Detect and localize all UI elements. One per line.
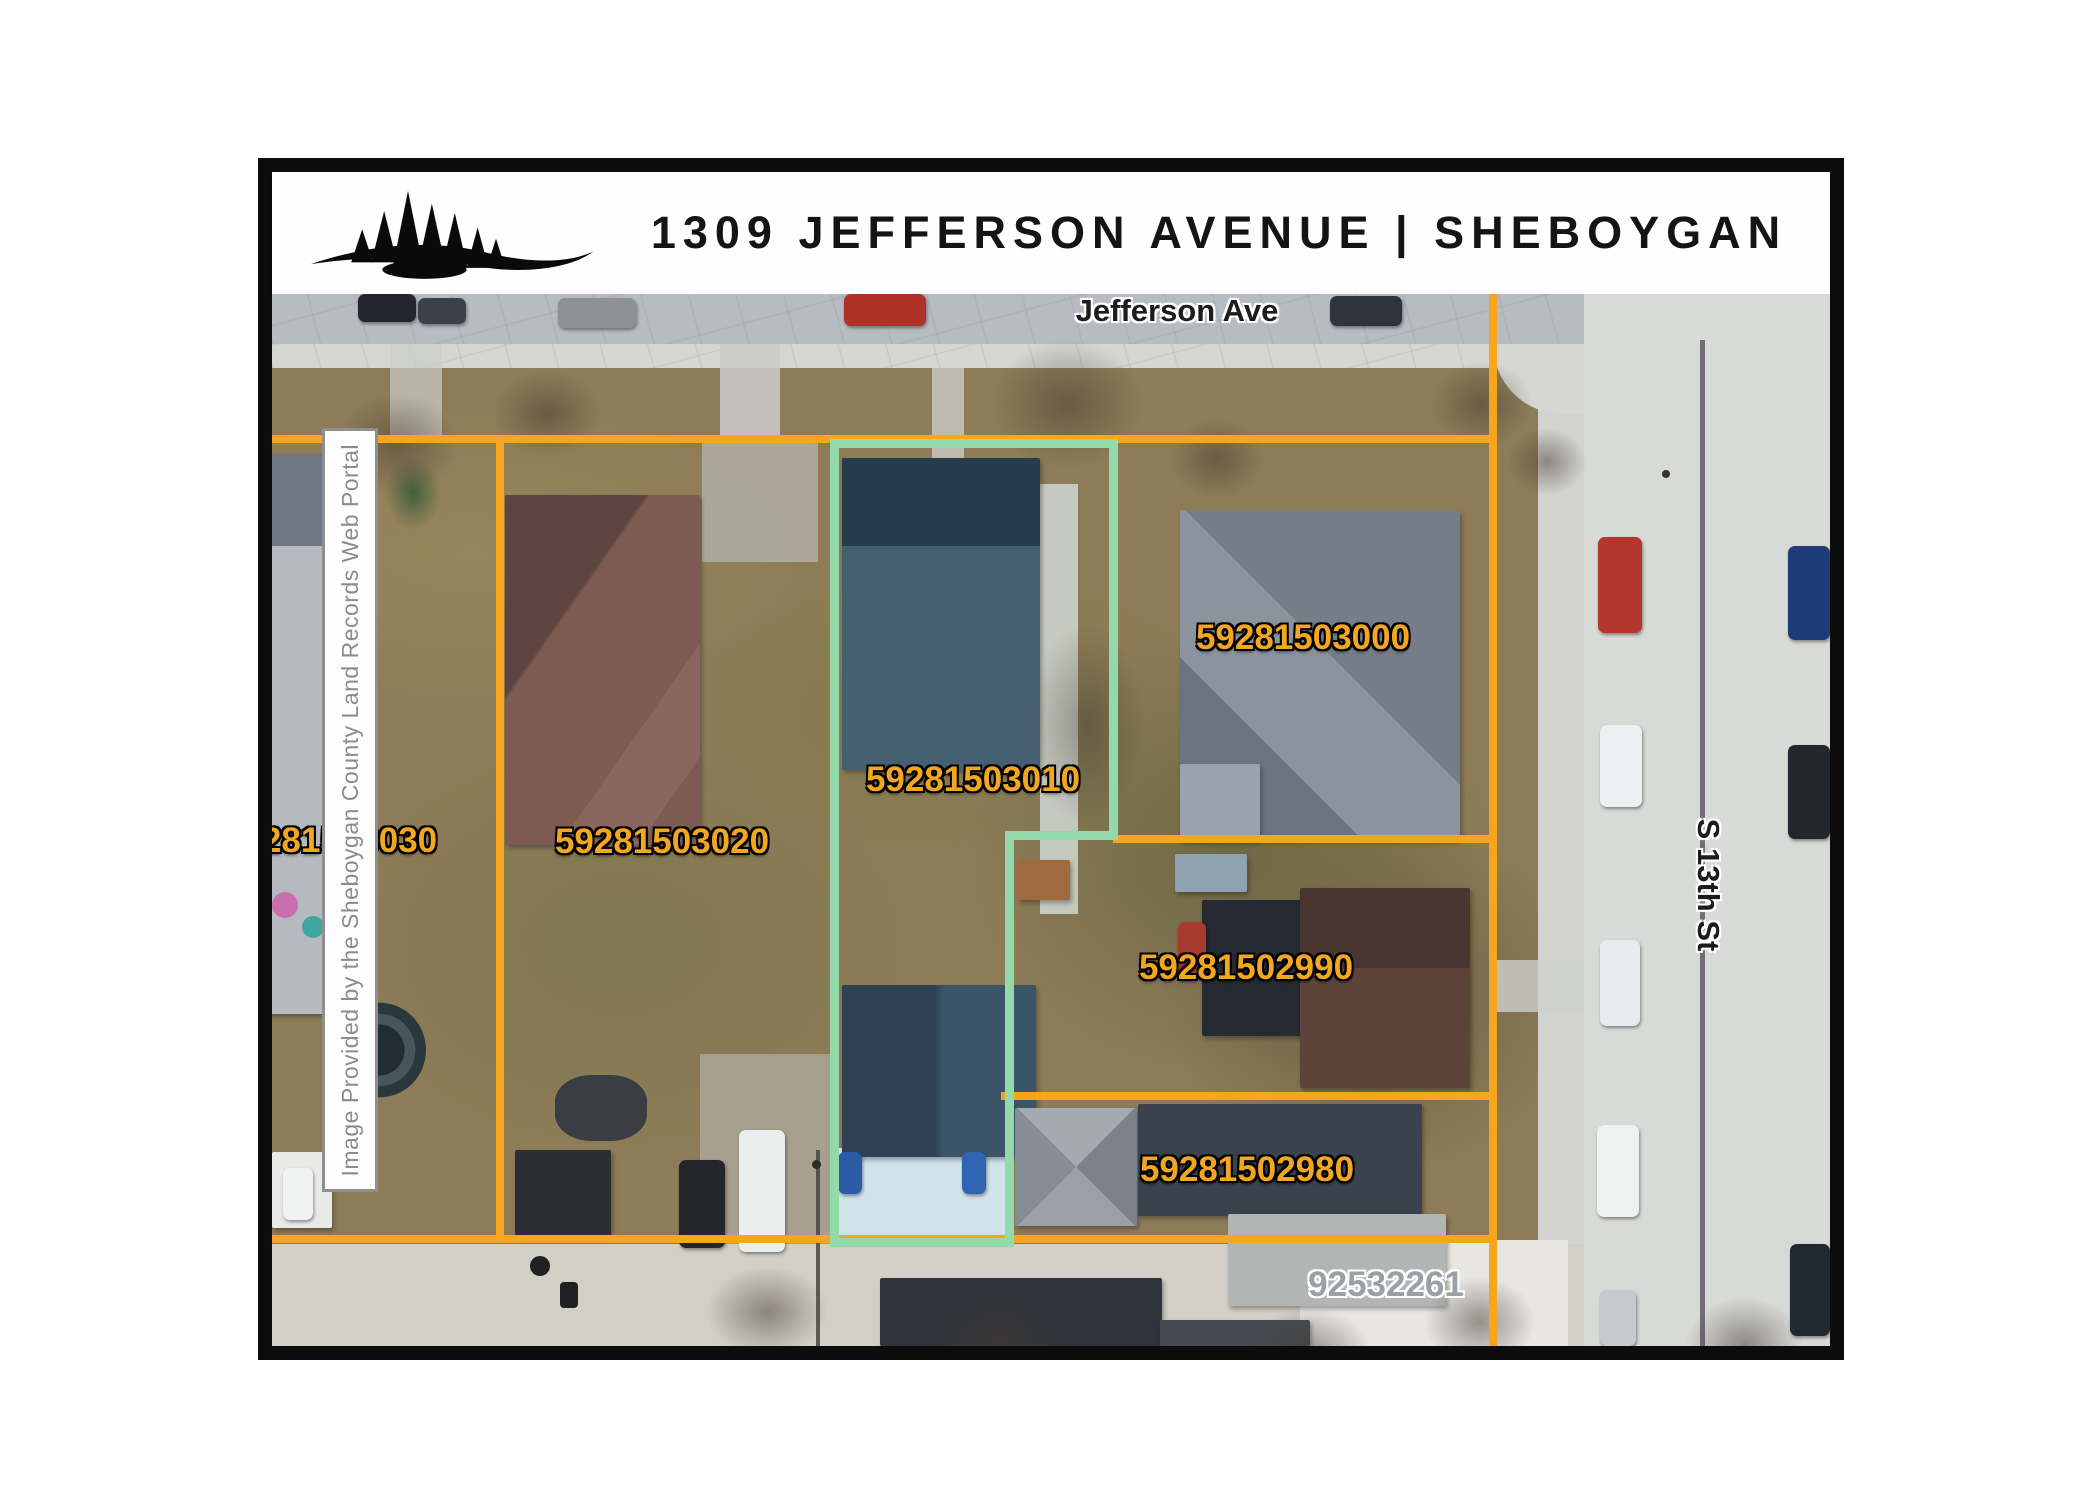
trampoline bbox=[555, 1075, 647, 1141]
utility-pole bbox=[812, 1160, 821, 1169]
parcel-label-59281502980: 59281502980 bbox=[1140, 1150, 1354, 1190]
car-blue-east bbox=[1788, 546, 1830, 640]
car-parked-jefferson-1 bbox=[358, 294, 416, 322]
playset-teal bbox=[302, 916, 324, 938]
car-white-alley bbox=[283, 1168, 313, 1220]
street-label-s-13th-st: S 13th St bbox=[1690, 819, 1726, 952]
playset-pink bbox=[272, 892, 298, 918]
parcel-label-59281503020: 59281503020 bbox=[555, 822, 769, 862]
shed-59281503020 bbox=[515, 1150, 611, 1236]
car-parked-jefferson-4 bbox=[1330, 296, 1402, 326]
van-white-rear bbox=[739, 1130, 785, 1252]
tree-canopy-4 bbox=[1152, 404, 1282, 514]
parcel-label-59281503010: 59281503010 bbox=[866, 760, 1080, 800]
tree-canopy-2 bbox=[472, 354, 622, 474]
car-blue-pad-right bbox=[962, 1152, 986, 1194]
parcel-label-92532261: 92532261 bbox=[1308, 1265, 1464, 1305]
driveway-apron bbox=[720, 344, 780, 440]
watermark-strip: Image Provided by the Sheboygan County L… bbox=[322, 428, 378, 1192]
tree-canopy-backyard bbox=[1007, 584, 1167, 864]
car-white-13th-1 bbox=[1600, 725, 1642, 807]
jefferson-sidewalk bbox=[272, 344, 1584, 368]
parcel-line-3000-2990 bbox=[1113, 835, 1497, 843]
parcel-label-59281502990: 59281502990 bbox=[1139, 948, 1353, 988]
driveway-apron-right bbox=[1497, 960, 1584, 1012]
subject-outline-bottom bbox=[830, 1238, 1014, 1247]
shared-driveway bbox=[702, 440, 818, 562]
car-parked-jefferson-3 bbox=[558, 298, 636, 328]
subject-outline-top bbox=[830, 439, 1118, 448]
car-blue-pad-left bbox=[838, 1152, 862, 1194]
tarp-structure-2990 bbox=[1175, 854, 1247, 892]
parcel-line-2990-2980 bbox=[1001, 1092, 1497, 1100]
porch-59281503000 bbox=[1180, 764, 1260, 840]
house-hip-2980 bbox=[1015, 1108, 1137, 1226]
parcel-line-east bbox=[1489, 294, 1497, 1346]
car-red-jefferson bbox=[844, 294, 926, 326]
car-silver-13th bbox=[1600, 1290, 1636, 1346]
tree-canopy-3 bbox=[962, 314, 1172, 494]
subject-outline-right-upper bbox=[1109, 439, 1118, 840]
flyer-frame: 1309 JEFFERSON AVENUE | SHEBOYGAN bbox=[258, 158, 1844, 1360]
alley-object-2 bbox=[560, 1282, 578, 1308]
street-label-jefferson-ave: Jefferson Ave bbox=[1076, 294, 1279, 329]
car-red-13th bbox=[1598, 537, 1642, 633]
parcel-label-59281503000: 59281503000 bbox=[1196, 618, 1410, 658]
shed-brown-2990 bbox=[1018, 860, 1070, 900]
house-59281503020 bbox=[505, 495, 700, 845]
logo-container bbox=[272, 178, 632, 288]
flyer-header: 1309 JEFFERSON AVENUE | SHEBOYGAN bbox=[272, 172, 1830, 295]
watermark-text: Image Provided by the Sheboygan County L… bbox=[337, 444, 364, 1177]
tree-canopy-6 bbox=[1492, 414, 1602, 509]
s13th-sidewalk bbox=[1538, 368, 1584, 1346]
page-title: 1309 JEFFERSON AVENUE | SHEBOYGAN bbox=[632, 207, 1830, 259]
car-white-13th-3 bbox=[1597, 1125, 1639, 1217]
parcel-line-west-mid bbox=[496, 435, 504, 1243]
subject-outline-right-lower bbox=[1005, 831, 1014, 1247]
car-parked-jefferson-2 bbox=[418, 298, 466, 324]
aerial-map: 59281503000 59281503010 59281503020 5928… bbox=[272, 294, 1830, 1346]
pine-trees-logo bbox=[302, 178, 602, 288]
house-59281502990 bbox=[1300, 888, 1470, 1088]
car-white-13th-2 bbox=[1600, 940, 1640, 1026]
alley-object-1 bbox=[530, 1256, 550, 1276]
streetlight-pole bbox=[1662, 470, 1670, 478]
car-dark-east-1 bbox=[1788, 745, 1830, 839]
subject-outline-left bbox=[830, 439, 839, 1247]
subject-outline-jog bbox=[1005, 831, 1118, 840]
